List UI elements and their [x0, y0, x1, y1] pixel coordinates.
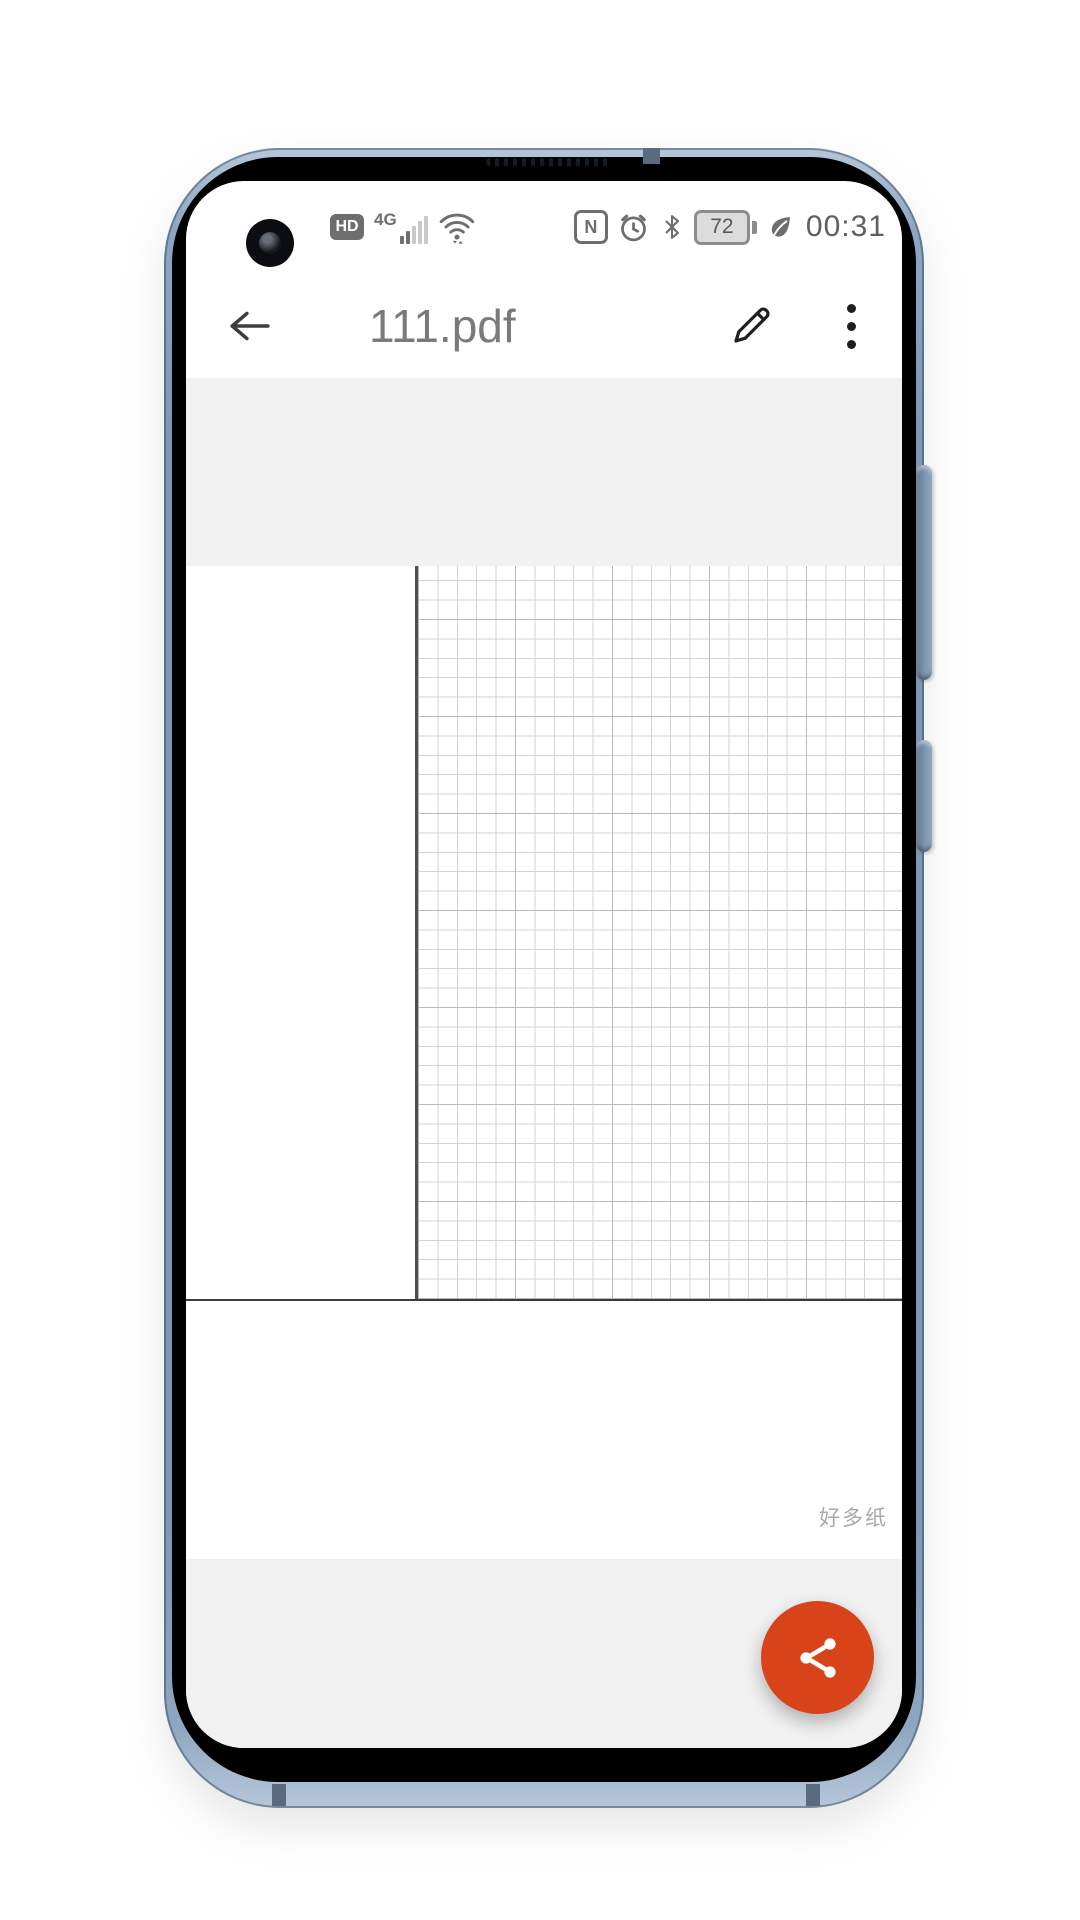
- hd-icon: HD: [330, 214, 364, 240]
- pencil-icon: [727, 302, 775, 350]
- antenna-line-top: [643, 148, 660, 164]
- volume-button: [916, 465, 932, 680]
- antenna-line-bottom-left: [272, 1784, 286, 1806]
- power-saver-leaf-icon: [766, 213, 794, 241]
- battery-nub: [752, 221, 757, 234]
- share-icon: [794, 1634, 842, 1682]
- status-bar: HD 4G: [186, 199, 902, 255]
- screen: HD 4G: [186, 181, 902, 1748]
- camera-cutout: [246, 219, 294, 267]
- speaker-grille: [486, 158, 608, 166]
- status-right-cluster: N 72: [574, 199, 886, 255]
- overflow-menu-button[interactable]: [847, 304, 856, 349]
- edit-button[interactable]: [727, 302, 775, 350]
- antenna-line-bottom-right: [806, 1784, 820, 1806]
- arrow-left-icon: [226, 307, 272, 345]
- bluetooth-icon: [659, 211, 685, 243]
- page-divider: [186, 1299, 902, 1301]
- signal-icon: 4G: [374, 210, 428, 244]
- network-type-label: 4G: [374, 211, 397, 228]
- pdf-page: 好多纸: [186, 566, 902, 1559]
- share-fab[interactable]: [761, 1601, 874, 1714]
- app-bar: 111.pdf: [186, 276, 902, 376]
- alarm-icon: [617, 211, 650, 244]
- battery-percent: 72: [694, 210, 750, 245]
- watermark-text: 好多纸: [819, 1502, 888, 1532]
- kebab-menu-icon: [847, 304, 856, 313]
- power-button: [916, 740, 932, 852]
- clock-time: 00:31: [806, 210, 886, 244]
- grid-paper: [415, 566, 902, 1299]
- back-button[interactable]: [226, 307, 272, 345]
- status-left-cluster: HD 4G: [330, 199, 476, 255]
- page-title: 111.pdf: [369, 299, 516, 353]
- battery-icon: 72: [694, 210, 757, 245]
- wifi-icon: [438, 210, 476, 244]
- nfc-icon: N: [574, 210, 608, 244]
- signal-bars-icon: [400, 216, 428, 244]
- phone-frame: HD 4G: [164, 148, 924, 1808]
- pdf-viewer[interactable]: 好多纸: [186, 378, 902, 1748]
